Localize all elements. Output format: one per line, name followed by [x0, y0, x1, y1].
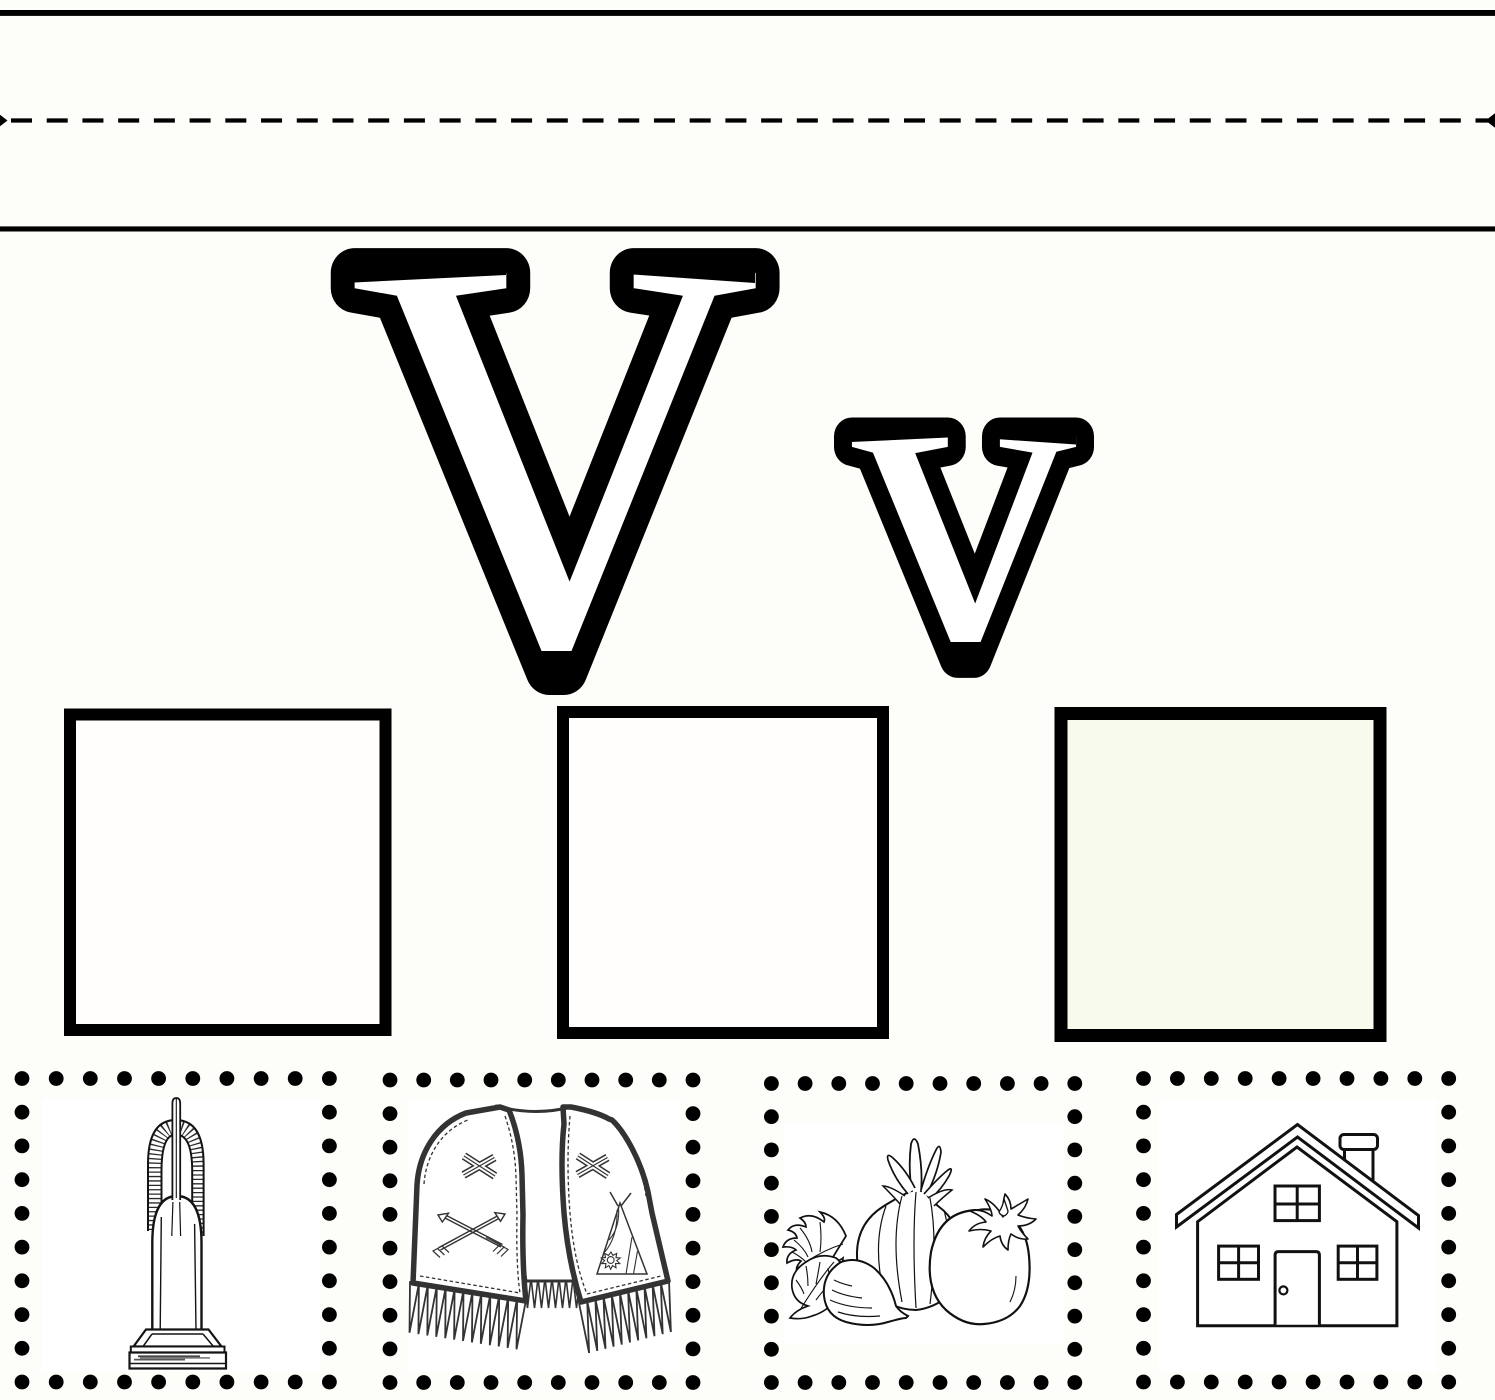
svg-text:V: V — [348, 133, 762, 790]
svg-text:v: v — [852, 232, 1076, 757]
